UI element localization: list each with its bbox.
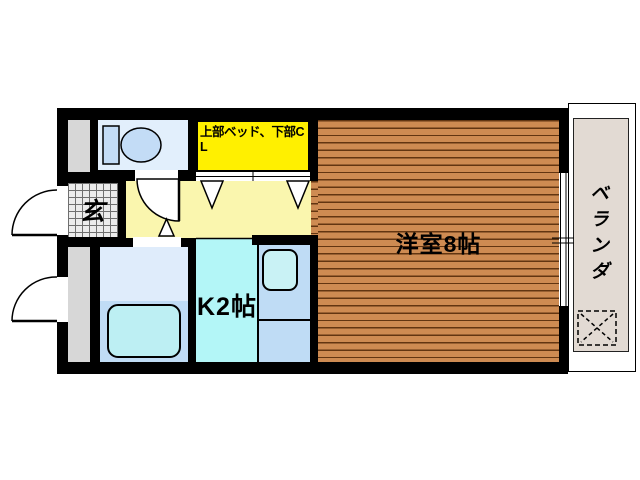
kitchen-label: K2帖 — [197, 287, 257, 323]
hallway — [126, 181, 311, 238]
door-swing-icon — [12, 277, 57, 321]
bathroom-lower — [100, 301, 188, 362]
western-room-doorway-floor — [311, 181, 318, 235]
window-opening — [559, 173, 568, 306]
veranda-label: ベランダ — [584, 183, 611, 287]
loft-bed-closet-label: 上部ベッド、下部CL — [200, 125, 310, 155]
toilet-door-opening — [135, 170, 178, 181]
kitchen-top-wall — [252, 235, 318, 245]
service-duct-top — [68, 120, 90, 172]
bathroom-upper — [100, 247, 188, 301]
closet-door-track — [196, 172, 310, 181]
kitchen-counter — [258, 245, 310, 362]
toilet-room — [98, 120, 188, 170]
entrance-label: 玄 — [66, 183, 118, 237]
storage-door-opening — [57, 277, 68, 322]
door-swing-icon — [12, 190, 57, 235]
service-duct-bottom — [68, 247, 90, 362]
floor-plan: 玄 上部ベッド、下部CL K2帖 洋室8帖 ベランダ — [0, 0, 640, 480]
western-room-label: 洋室8帖 — [318, 225, 559, 259]
bathroom-door-opening — [133, 237, 181, 247]
